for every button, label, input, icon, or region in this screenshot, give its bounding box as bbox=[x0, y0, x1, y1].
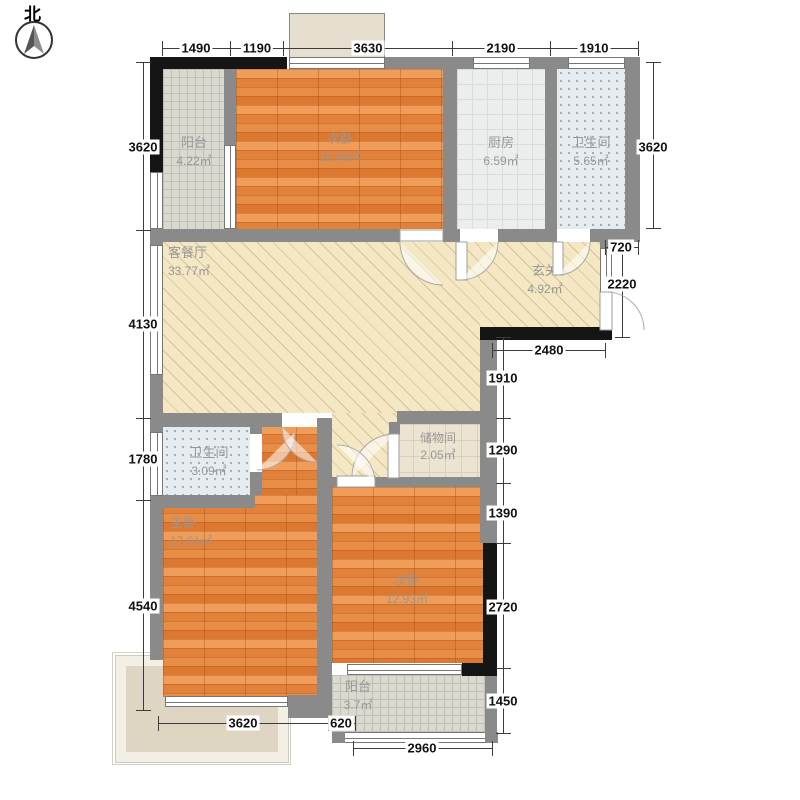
door-gap bbox=[282, 413, 317, 427]
dim-label: 1390 bbox=[487, 506, 520, 521]
dim-label: 2480 bbox=[533, 343, 566, 358]
wall-black bbox=[150, 57, 287, 69]
dim-label: 3620 bbox=[127, 140, 160, 155]
tick bbox=[550, 41, 551, 56]
room-label-foyer: 玄关 4.92㎡ bbox=[505, 262, 585, 298]
floor-hallway bbox=[332, 413, 397, 477]
wall bbox=[443, 229, 460, 242]
room-label-balcony-south: 阳台 3.7㎡ bbox=[332, 678, 384, 714]
door-leaf bbox=[400, 230, 443, 241]
tick bbox=[162, 41, 163, 56]
room-label-bathroom-south: 卫生间 3.09㎡ bbox=[167, 444, 251, 480]
wall bbox=[224, 69, 236, 145]
wall bbox=[397, 411, 497, 424]
wall bbox=[332, 732, 345, 743]
window-balcony-door bbox=[347, 664, 462, 675]
tick bbox=[452, 41, 453, 56]
wall bbox=[150, 413, 282, 427]
door-gap bbox=[557, 229, 590, 242]
window bbox=[289, 57, 385, 69]
tick bbox=[283, 41, 284, 56]
wall bbox=[443, 69, 457, 229]
wall bbox=[163, 229, 400, 242]
dim-label: 3620 bbox=[637, 140, 670, 155]
window bbox=[568, 57, 625, 69]
wall bbox=[332, 477, 337, 487]
door-gap bbox=[460, 229, 498, 242]
tick bbox=[496, 337, 511, 338]
tick bbox=[136, 62, 151, 63]
tick bbox=[496, 668, 511, 669]
door-leaf bbox=[337, 476, 375, 487]
tick bbox=[136, 418, 151, 419]
wall bbox=[498, 229, 557, 242]
tick bbox=[158, 716, 159, 731]
compass-needle-icon bbox=[15, 21, 53, 59]
wall bbox=[288, 695, 332, 718]
dim-label: 1190 bbox=[241, 41, 273, 56]
tick bbox=[638, 41, 639, 56]
room-label-bathroom-north: 卫生间 5.65㎡ bbox=[549, 134, 633, 170]
dim-label: 2190 bbox=[485, 41, 518, 56]
wall bbox=[375, 477, 497, 487]
tick bbox=[492, 343, 493, 358]
window bbox=[150, 245, 163, 375]
wall-black bbox=[480, 327, 612, 340]
window-balcony-door bbox=[224, 145, 236, 229]
wall bbox=[150, 496, 163, 660]
tick bbox=[638, 240, 639, 255]
room-label-living: 客餐厅 33.77㎡ bbox=[168, 244, 210, 280]
dim-line-right-inner bbox=[503, 337, 504, 733]
tick bbox=[136, 710, 151, 711]
tick bbox=[605, 343, 606, 358]
wall-black bbox=[150, 57, 163, 172]
tick bbox=[136, 500, 151, 501]
dim-label: 620 bbox=[328, 716, 354, 731]
window bbox=[150, 172, 163, 229]
room-label-kitchen: 厨房 6.59㎡ bbox=[457, 134, 545, 170]
dim-label: 2720 bbox=[487, 600, 520, 615]
wall bbox=[163, 495, 255, 508]
tick bbox=[353, 741, 354, 756]
tick bbox=[615, 337, 630, 338]
room-label-bedroom-south: 次卧 12.93㎡ bbox=[357, 572, 457, 608]
door-gap bbox=[250, 434, 262, 472]
dim-label: 1780 bbox=[127, 452, 160, 467]
dim-line-top bbox=[162, 48, 638, 49]
dim-label: 4540 bbox=[127, 599, 160, 614]
room-label-bedroom-north: 次卧 15.48㎡ bbox=[290, 130, 390, 166]
tick bbox=[492, 741, 493, 756]
room-label-balcony-north: 阳台 4.22㎡ bbox=[163, 134, 225, 170]
dim-label: 2220 bbox=[606, 277, 639, 292]
room-label-master: 主卧 17.01㎡ bbox=[170, 514, 212, 550]
tick bbox=[355, 716, 356, 731]
dim-label: 1910 bbox=[487, 371, 520, 386]
tick bbox=[496, 543, 511, 544]
dim-label: 1450 bbox=[487, 694, 520, 709]
dim-label: 3620 bbox=[227, 716, 260, 731]
tick bbox=[496, 483, 511, 484]
dim-label: 4130 bbox=[127, 317, 160, 332]
dim-label: 1490 bbox=[180, 41, 213, 56]
window bbox=[473, 57, 530, 69]
tick bbox=[230, 41, 231, 56]
wall-black bbox=[462, 663, 497, 676]
wall bbox=[385, 57, 473, 69]
tick bbox=[496, 418, 511, 419]
tick bbox=[646, 228, 661, 229]
tick bbox=[136, 230, 151, 231]
wall bbox=[317, 418, 332, 718]
wall bbox=[150, 229, 163, 245]
dim-label: 1290 bbox=[487, 443, 520, 458]
dim-label: 1910 bbox=[578, 41, 611, 56]
floor-plan: 北 bbox=[0, 0, 800, 800]
floor-living bbox=[163, 242, 480, 413]
dim-label: 720 bbox=[608, 240, 634, 255]
window bbox=[165, 696, 288, 707]
dim-label: 2960 bbox=[406, 741, 439, 756]
wall bbox=[530, 57, 568, 69]
dim-label: 3630 bbox=[352, 41, 385, 56]
tick bbox=[496, 733, 511, 734]
tick bbox=[605, 240, 606, 255]
tick bbox=[646, 62, 661, 63]
room-label-storage: 储物间 2.05㎡ bbox=[398, 430, 478, 465]
